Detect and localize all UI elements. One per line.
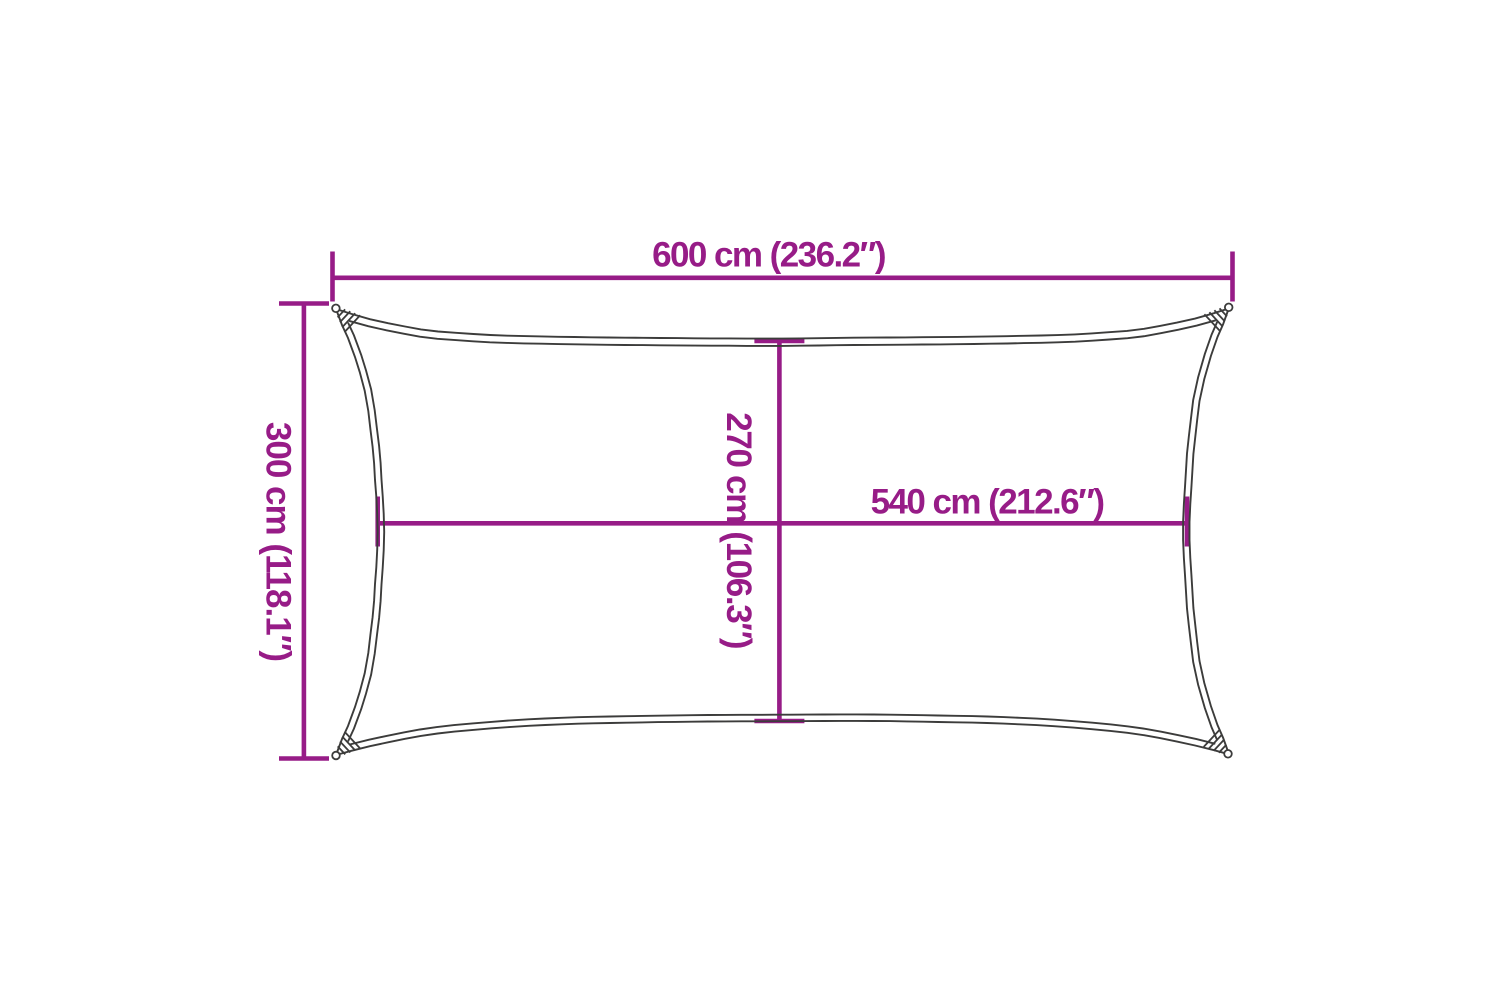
svg-text:300 cm (118.1″): 300 cm (118.1″) [259,422,298,661]
svg-text:540 cm (212.6″): 540 cm (212.6″) [871,483,1104,522]
svg-text:600 cm (236.2″): 600 cm (236.2″) [652,236,885,275]
svg-text:270 cm (106.3″): 270 cm (106.3″) [719,412,758,648]
